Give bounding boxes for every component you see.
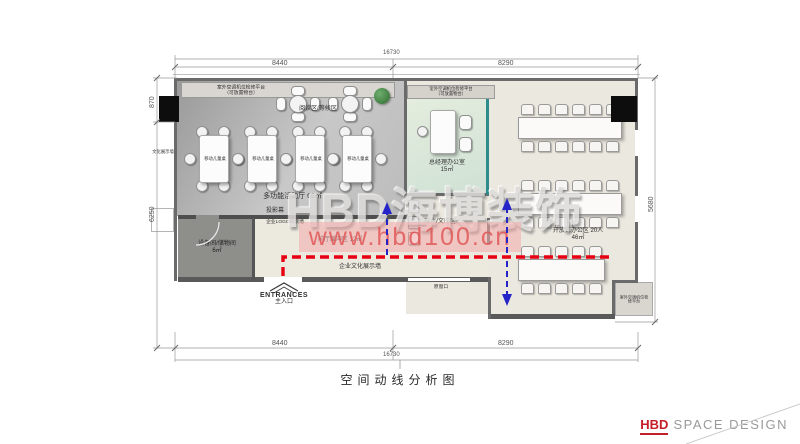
- chair: [606, 217, 619, 228]
- chair: [572, 141, 585, 152]
- window-label: 原窗口: [423, 285, 460, 291]
- chair: [589, 104, 602, 115]
- chair-row: [521, 104, 619, 115]
- chair: [521, 104, 534, 115]
- drawing-title: 空间动线分析图: [290, 371, 510, 388]
- watermark-site: www.hbd100.cn: [309, 223, 512, 251]
- window-band-bottom: [408, 278, 470, 281]
- company-logo: HBDSPACE DESIGN: [640, 416, 788, 434]
- reading-cluster: [328, 86, 372, 122]
- chair: [589, 217, 602, 228]
- guest-chair: [459, 115, 472, 130]
- chair: [555, 141, 568, 152]
- equipment-name: 设备间/储物间: [185, 241, 249, 248]
- plant: [374, 88, 390, 104]
- ac-platform-left-label: 室外空调机位检修平台 （可放置物台）: [205, 85, 277, 96]
- ac-label-line2: （可放置物台）: [418, 92, 484, 97]
- equipment-area: 6㎡: [185, 248, 249, 255]
- guest-chair: [459, 137, 472, 152]
- wall-bottom-extension: [488, 314, 615, 319]
- chair: [589, 180, 602, 191]
- chair: [572, 104, 585, 115]
- page: { "title": "空间动线分析图", "watermark": { "br…: [0, 0, 800, 444]
- wall-extension-left: [488, 277, 491, 319]
- entrance-en: ENTRANCES: [254, 292, 314, 299]
- wall-step-right: [612, 280, 638, 283]
- chair: [606, 180, 619, 191]
- reading-cluster: [276, 86, 320, 122]
- chair: [521, 283, 534, 294]
- chair: [521, 141, 534, 152]
- dim-top-right: 8290: [498, 60, 514, 67]
- chair: [538, 246, 551, 257]
- culture-wall-left-label: 文化展示墙: [151, 150, 175, 155]
- culture-wall-label: 企业文化展示墙: [318, 264, 402, 271]
- wall-equipment-right: [252, 218, 255, 280]
- column-left: [159, 96, 179, 122]
- ac-platform-right-label: 室外空调机位检修平台 （可放置物台）: [418, 87, 484, 97]
- kids-table-label: 移动儿童桌: [338, 157, 378, 162]
- wall-door-gap: [196, 215, 219, 219]
- watermark-band: www.hbd100.cn: [299, 222, 521, 252]
- office-table: [518, 259, 605, 281]
- chair: [589, 246, 602, 257]
- chair: [538, 104, 551, 115]
- wall-right-lower: [612, 280, 615, 318]
- reading-area-label: 阅读区/等候区: [288, 106, 348, 113]
- office-table-group: [518, 246, 610, 296]
- wall-top-outer: [173, 74, 640, 75]
- chair: [555, 283, 568, 294]
- kids-table-label: 移动儿童桌: [243, 157, 283, 162]
- chair: [589, 141, 602, 152]
- chair: [606, 141, 619, 152]
- dim-bottom-right: 8290: [498, 340, 514, 347]
- chair: [521, 246, 534, 257]
- sofa-seat: [276, 97, 286, 111]
- chair: [538, 141, 551, 152]
- sofa-seat: [291, 112, 305, 122]
- kids-table: 移动儿童桌: [199, 135, 229, 183]
- ac-label-line2: （可放置物台）: [205, 91, 277, 97]
- sofa-seat: [362, 97, 372, 111]
- chair-row: [521, 141, 619, 152]
- manager-name: 总经理办公室: [410, 160, 484, 167]
- dim-bottom-total: 16730: [383, 352, 400, 358]
- window-right-1: [635, 130, 638, 156]
- dim-left-lower: 6250: [149, 206, 156, 222]
- chair: [572, 246, 585, 257]
- dim-right-side: 5680: [648, 196, 655, 212]
- dim-top-left: 8440: [272, 60, 288, 67]
- dim-bottom-left: 8440: [272, 340, 288, 347]
- dim-top-total: 16730: [383, 50, 400, 56]
- sofa-seat: [343, 112, 357, 122]
- chair: [589, 283, 602, 294]
- equipment-room-label: 设备间/储物间 6㎡: [185, 241, 249, 255]
- office-table: [518, 117, 622, 139]
- kids-table-label: 移动儿童桌: [195, 157, 235, 162]
- chair: [555, 104, 568, 115]
- entrance-label: ENTRANCES 主入口: [254, 292, 314, 306]
- logo-suffix: SPACE DESIGN: [673, 417, 788, 432]
- chair-row: [521, 283, 602, 294]
- manager-desk: [430, 110, 456, 154]
- entrance-zh: 主入口: [254, 299, 314, 306]
- chair: [538, 283, 551, 294]
- chair: [572, 283, 585, 294]
- window-right-2: [635, 196, 638, 222]
- logo-hbd: HBD: [640, 417, 668, 435]
- column-right: [611, 96, 637, 122]
- chair: [555, 246, 568, 257]
- kids-table-label: 移动儿童桌: [291, 157, 331, 162]
- chair-row: [521, 246, 602, 257]
- chair: [417, 126, 428, 137]
- kids-table: 移动儿童桌: [247, 135, 277, 183]
- ac-platform-bottom-right-label: 室外空调机位检修平台: [620, 296, 649, 304]
- dim-left-upper: 870: [149, 96, 156, 108]
